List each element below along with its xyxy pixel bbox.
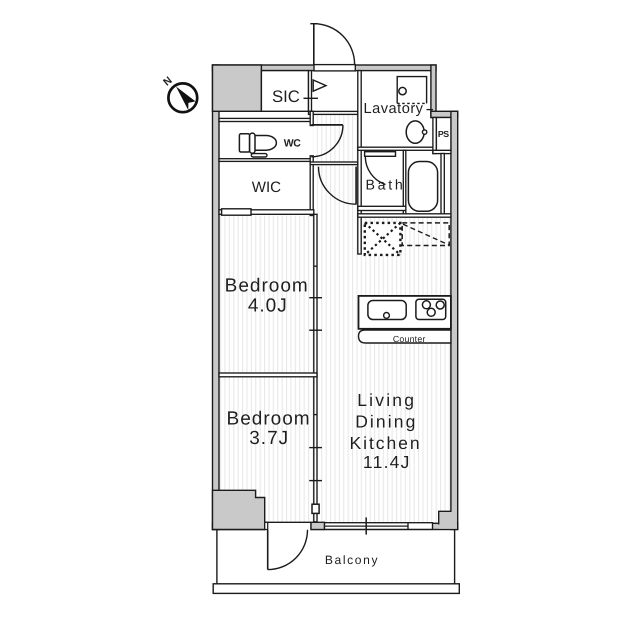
svg-text:SIC: SIC — [272, 87, 300, 106]
svg-text:Lavatory: Lavatory — [364, 101, 424, 117]
svg-text:Dining: Dining — [355, 411, 417, 431]
svg-text:WC: WC — [284, 138, 302, 150]
svg-text:Living: Living — [357, 390, 416, 410]
svg-text:Balcony: Balcony — [325, 553, 379, 567]
svg-text:4.0J: 4.0J — [248, 296, 288, 317]
svg-text:11.4J: 11.4J — [363, 452, 411, 472]
svg-text:PS: PS — [438, 129, 449, 139]
svg-text:Bedroom: Bedroom — [225, 276, 309, 297]
svg-text:Bath: Bath — [366, 178, 406, 194]
svg-text:WIC: WIC — [252, 179, 281, 196]
svg-text:Counter: Counter — [393, 334, 426, 344]
svg-text:Kitchen: Kitchen — [349, 433, 421, 453]
svg-text:Bedroom: Bedroom — [227, 409, 311, 430]
svg-text:3.7J: 3.7J — [249, 428, 289, 449]
